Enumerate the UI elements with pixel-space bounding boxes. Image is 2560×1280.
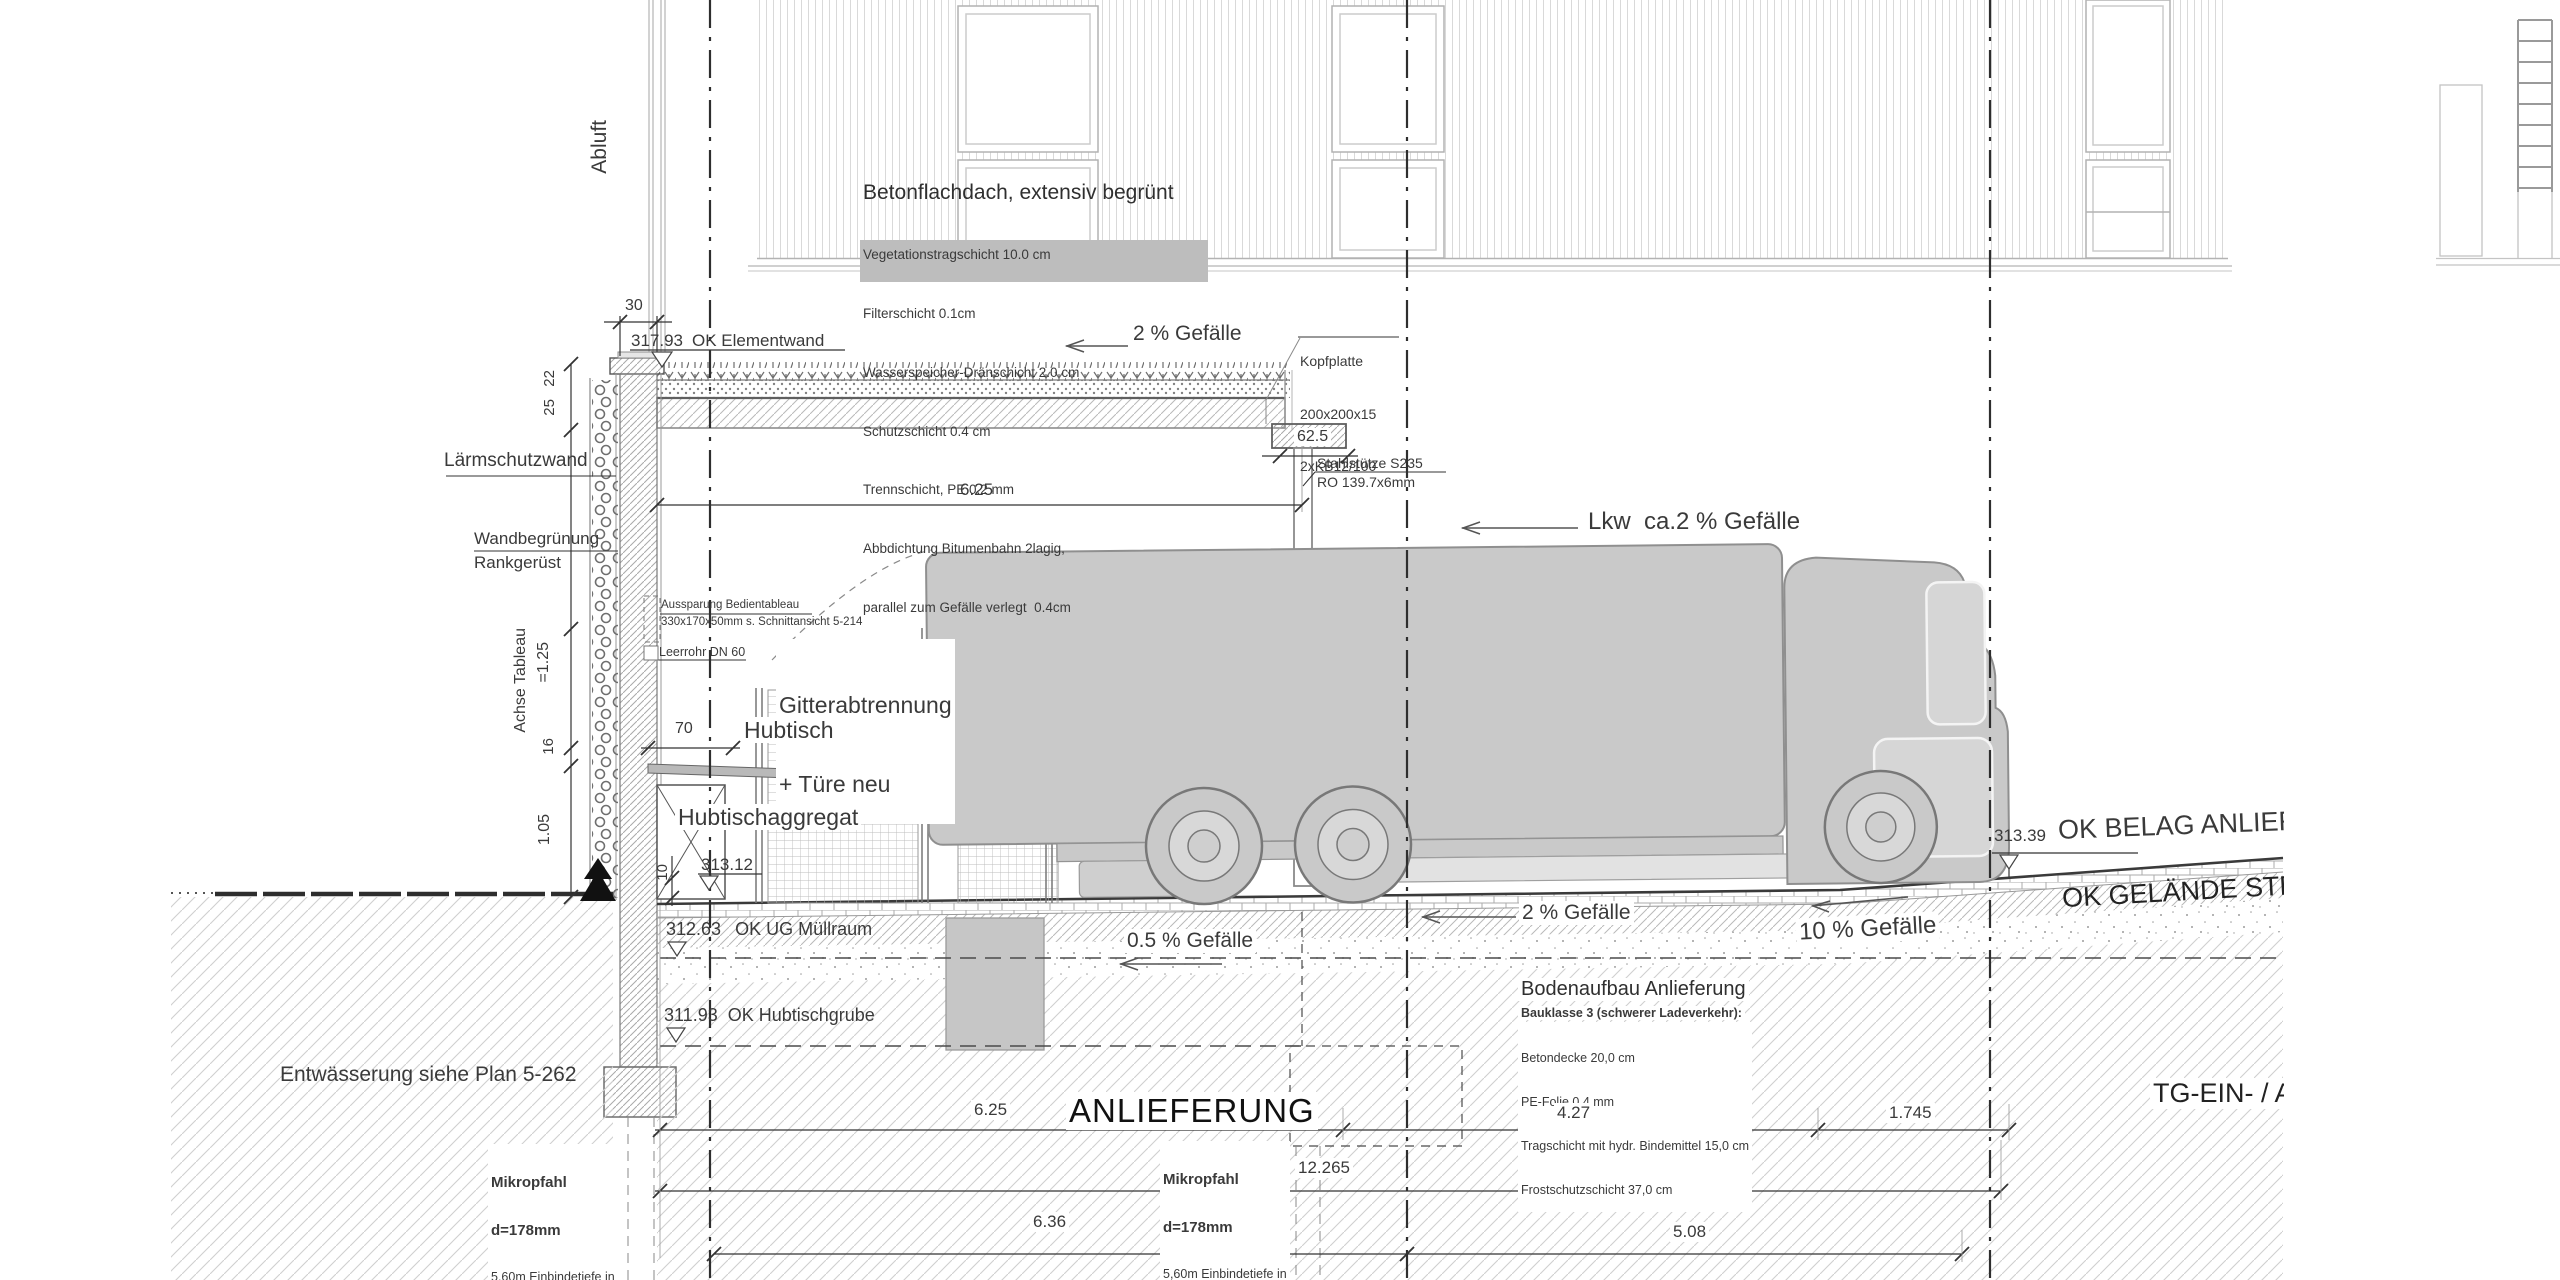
achse-tableau-label: Achse Tableau: [512, 628, 530, 733]
dim-16: 16: [540, 738, 557, 755]
dim-roof-span: 6.25: [960, 480, 993, 500]
level-hubtischgrube: 311.93OK Hubtischgrube: [664, 1005, 875, 1026]
mikropfahl-note-2: Mikropfahl d=178mm 5,60m Einbindetiefe i…: [1160, 1141, 1290, 1280]
roof-layer-list: Vegetationstragschicht 10.0 cm Filtersch…: [863, 206, 1079, 637]
level-muellraum: 312.63OK UG Müllraum: [666, 919, 872, 940]
truck: [926, 542, 2010, 907]
dim-105: 1.05: [536, 814, 554, 845]
dim-22: 22: [541, 370, 558, 387]
sheet-edge-mask: [2284, 780, 2560, 1140]
wall-greening: [592, 380, 618, 898]
dim-row2: 12.265: [1295, 1158, 1353, 1178]
dim-70: 70: [675, 720, 693, 738]
abluft-label: Abluft: [588, 120, 612, 174]
lift-platform-lowered: [946, 918, 1044, 1050]
delivery-floor: [657, 858, 2283, 1280]
dim-row3-b: 5.08: [1670, 1222, 1709, 1242]
stahlstuetze-label: Stahlstütze S235: [1317, 455, 1423, 471]
anlieferung-title: ANLIEFERUNG: [1066, 1092, 1318, 1130]
aussparung-label-2: 330x170x50mm s. Schnittansicht 5-214: [661, 616, 862, 629]
floor-slope-label: 2 % Gefälle: [1519, 901, 1634, 925]
wandbegruenung-label: Wandbegrünung: [474, 529, 599, 549]
windshield: [1926, 582, 1985, 725]
dim-30: 30: [625, 297, 643, 315]
dim-625: 62.5: [1294, 428, 1331, 446]
rankgeruest-label: Rankgerüst: [474, 553, 561, 573]
dim-row3-a: 6.36: [1030, 1212, 1069, 1232]
hubtischaggregat-label: Hubtischaggregat: [675, 804, 861, 830]
leerrohr-label: Leerrohr DN 60: [659, 645, 745, 659]
bodenaufbau-subtitle: Bauklasse 3 (schwerer Ladeverkehr):: [1518, 1006, 1745, 1020]
laermschutzwand-label: Lärmschutzwand: [444, 450, 588, 472]
level-belag-value: 313.39: [1994, 826, 2046, 846]
level-31312: 313.12: [701, 855, 753, 875]
mikropfahl-note-1: Mikropfahl d=178mm 5,60m Einbindetiefe i…: [488, 1144, 618, 1280]
dim-25: 25: [541, 399, 558, 416]
roof-slope-label: 2 % Gefälle: [1133, 322, 1242, 346]
aussparung-label-1: Aussparung Bedientableau: [661, 599, 799, 612]
roof-title: Betonflachdach, extensiv begrünt: [863, 181, 1174, 205]
ladder-icon: [2518, 20, 2552, 192]
bodenaufbau-title: Bodenaufbau Anlieferung: [1518, 978, 1749, 1001]
dim-row1-c: 1.745: [1886, 1103, 1935, 1123]
architectural-section-sheet: Abluft Betonflachdach, extensiv begrünt …: [0, 0, 2560, 1280]
level-elementwand: 317.93OK Elementwand: [631, 331, 824, 351]
hubtisch-label: Hubtisch: [741, 717, 836, 743]
achse-tableau-value: =1.25: [535, 642, 553, 682]
dim-row1-b: 4.27: [1554, 1103, 1593, 1123]
stahlstuetze-profile: RO 139.7x6mm: [1317, 474, 1415, 490]
lkw-slope-label: Lkw ca.2 % Gefälle: [1588, 508, 1800, 536]
muellraum-slope-label: 0.5 % Gefälle: [1124, 929, 1256, 953]
dim-row1-a: 6.25: [971, 1100, 1010, 1120]
entwaesserung-label: Entwässerung siehe Plan 5-262: [280, 1063, 577, 1087]
dim-10: 10: [654, 864, 671, 881]
